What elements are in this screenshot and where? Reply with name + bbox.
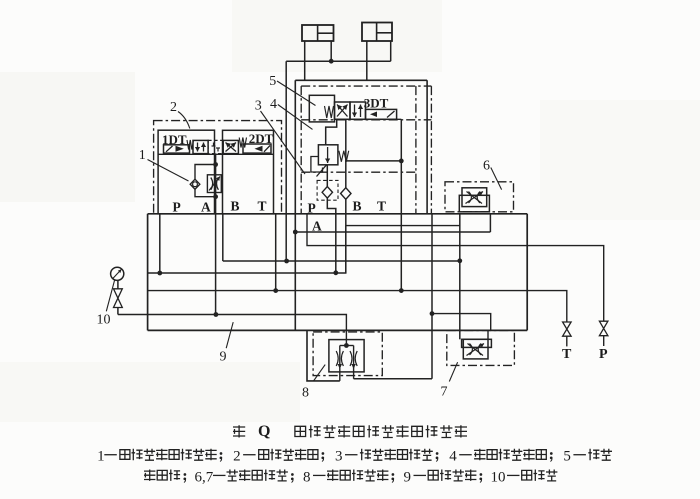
svg-text:Q: Q	[258, 423, 270, 440]
svg-text:A: A	[201, 200, 211, 215]
svg-text:4: 4	[449, 449, 457, 465]
svg-text:5: 5	[269, 74, 276, 89]
svg-text:6: 6	[483, 158, 490, 173]
svg-text:3DT: 3DT	[364, 96, 389, 111]
svg-text:1: 1	[139, 148, 146, 163]
svg-text:2: 2	[233, 449, 241, 465]
svg-text:8: 8	[303, 470, 311, 486]
svg-text:1: 1	[97, 449, 105, 465]
svg-text:6,7: 6,7	[195, 470, 214, 486]
svg-text:8: 8	[302, 386, 309, 401]
svg-text:3: 3	[335, 449, 343, 465]
svg-text:T: T	[258, 199, 267, 214]
svg-text:4: 4	[270, 97, 277, 112]
svg-text:10: 10	[97, 313, 111, 328]
svg-text:B: B	[353, 199, 362, 214]
svg-text:2: 2	[170, 100, 177, 115]
svg-text:B: B	[231, 199, 240, 214]
svg-text:P: P	[173, 200, 181, 215]
svg-text:P: P	[599, 347, 608, 362]
svg-text:10: 10	[491, 470, 506, 486]
svg-text:T: T	[377, 199, 386, 214]
svg-text:9: 9	[404, 470, 412, 486]
svg-text:9: 9	[220, 350, 227, 365]
svg-text:5: 5	[563, 449, 571, 465]
svg-text:T: T	[562, 347, 572, 362]
svg-text:7: 7	[441, 385, 448, 400]
svg-text:A: A	[312, 219, 322, 234]
